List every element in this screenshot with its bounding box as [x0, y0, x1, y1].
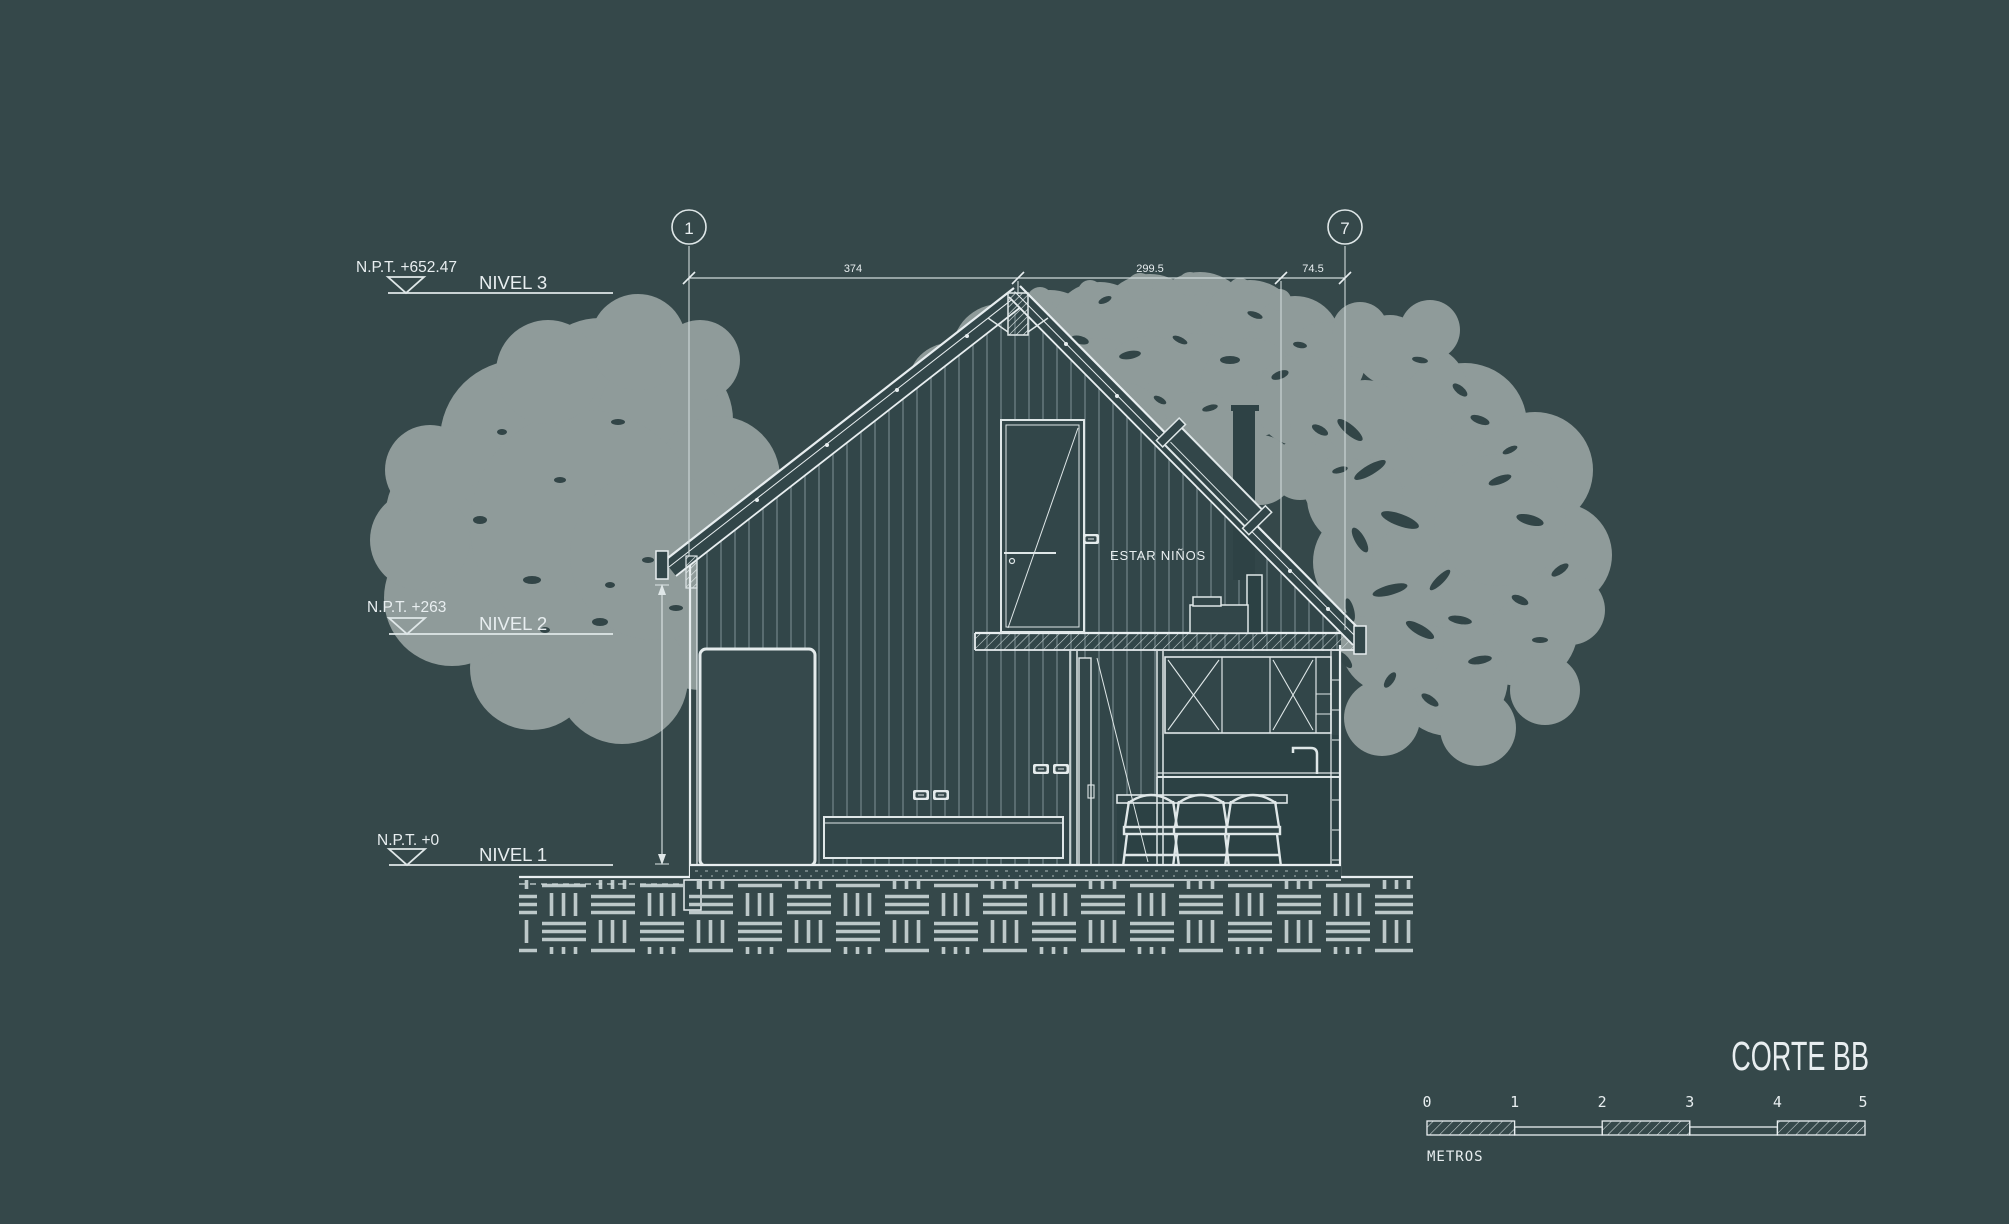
scale-unit: METROS — [1427, 1149, 1484, 1165]
floor-slab — [690, 865, 1341, 880]
level-name: NIVEL 3 — [479, 272, 547, 293]
scale-tick: 4 — [1773, 1093, 1782, 1111]
scale-tick: 3 — [1685, 1093, 1694, 1111]
section-drawing-canvas: 374 299.5 74.5 1 7 N.P.T. +652.47 NIVEL … — [0, 0, 2009, 1224]
outlet — [1033, 764, 1049, 774]
outlet — [933, 790, 949, 800]
ground — [519, 877, 1413, 954]
level-npt: N.P.T. +0 — [377, 832, 440, 849]
scale-tick: 5 — [1858, 1093, 1867, 1111]
loft-floor-slab — [975, 633, 1354, 650]
outlet — [1083, 534, 1099, 544]
level-name: NIVEL 2 — [479, 613, 547, 634]
tall-cabinet-door — [700, 649, 815, 866]
loft-door — [1001, 420, 1084, 632]
level-name: NIVEL 1 — [479, 844, 547, 865]
corte-bb-drawing: 374 299.5 74.5 1 7 N.P.T. +652.47 NIVEL … — [0, 0, 2009, 1224]
grid-bubble-label: 1 — [684, 219, 693, 238]
backsplash — [1160, 735, 1341, 775]
scale-tick: 0 — [1422, 1093, 1431, 1111]
outlet — [913, 790, 929, 800]
level-npt: N.P.T. +263 — [367, 599, 446, 616]
room-label: ESTAR NIÑOS — [1110, 548, 1206, 563]
dim-value: 74.5 — [1302, 263, 1323, 275]
grid-bubble-label: 7 — [1340, 219, 1349, 238]
level-npt: N.P.T. +652.47 — [356, 259, 457, 276]
title-block: CORTE BB — [1731, 1035, 1869, 1080]
dim-value: 299.5 — [1136, 263, 1164, 275]
bench — [824, 817, 1063, 858]
drawing-title: CORTE BB — [1731, 1035, 1869, 1080]
scale-tick: 1 — [1510, 1093, 1519, 1111]
scale-tick: 2 — [1598, 1093, 1607, 1111]
outlet — [1053, 764, 1069, 774]
dim-value: 374 — [844, 263, 862, 275]
wall-top-section — [686, 556, 697, 588]
